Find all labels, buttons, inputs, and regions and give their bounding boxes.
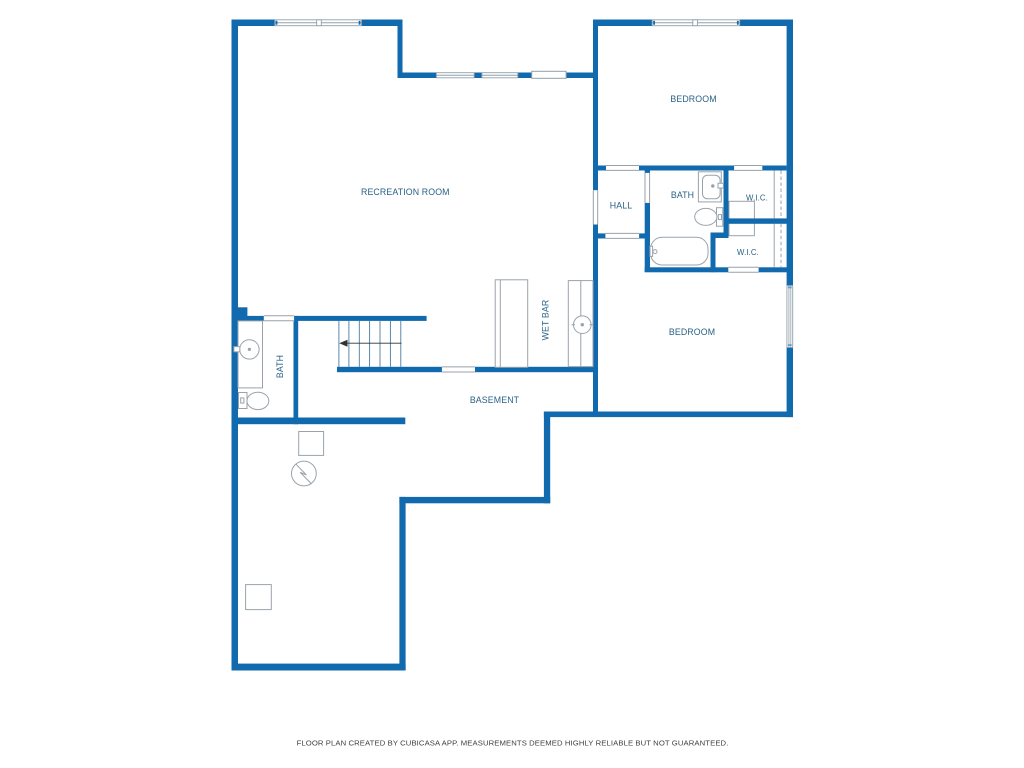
svg-text:W.I.C.: W.I.C.: [746, 194, 768, 203]
svg-text:BATH: BATH: [671, 190, 694, 200]
svg-text:RECREATION ROOM: RECREATION ROOM: [361, 187, 450, 197]
svg-text:FLOOR PLAN CREATED BY CUBICASA: FLOOR PLAN CREATED BY CUBICASA APP. MEAS…: [297, 739, 729, 748]
svg-text:WET BAR: WET BAR: [540, 300, 550, 341]
svg-text:W.I.C.: W.I.C.: [737, 248, 759, 257]
svg-text:BATH: BATH: [275, 355, 285, 378]
svg-text:HALL: HALL: [610, 201, 633, 211]
svg-text:BEDROOM: BEDROOM: [670, 94, 716, 104]
svg-text:BEDROOM: BEDROOM: [669, 327, 715, 337]
svg-text:BASEMENT: BASEMENT: [470, 395, 520, 405]
